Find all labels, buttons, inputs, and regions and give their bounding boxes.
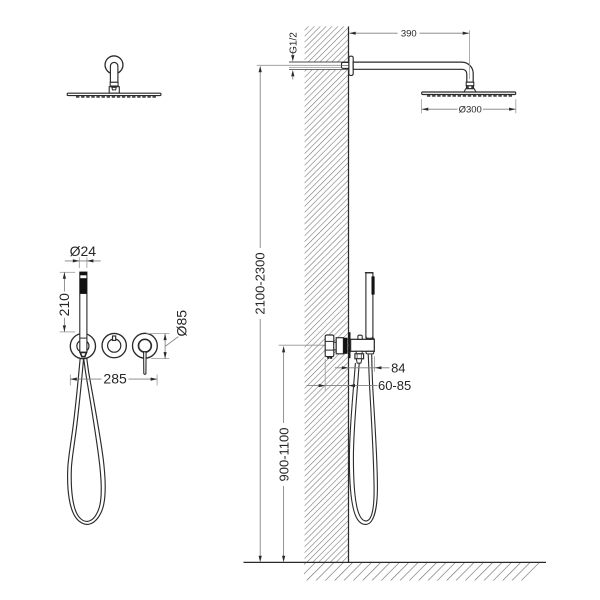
svg-text:G1/2: G1/2 — [289, 32, 300, 54]
svg-text:Ø24: Ø24 — [70, 243, 97, 259]
svg-text:285: 285 — [103, 371, 127, 387]
svg-text:390: 390 — [401, 29, 417, 40]
svg-text:210: 210 — [56, 293, 72, 317]
svg-text:900-1100: 900-1100 — [277, 428, 292, 482]
svg-text:2100-2300: 2100-2300 — [252, 252, 267, 314]
svg-text:Ø300: Ø300 — [459, 105, 482, 116]
svg-text:Ø85: Ø85 — [173, 310, 189, 337]
svg-text:84: 84 — [391, 360, 405, 375]
svg-text:60-85: 60-85 — [378, 378, 411, 393]
